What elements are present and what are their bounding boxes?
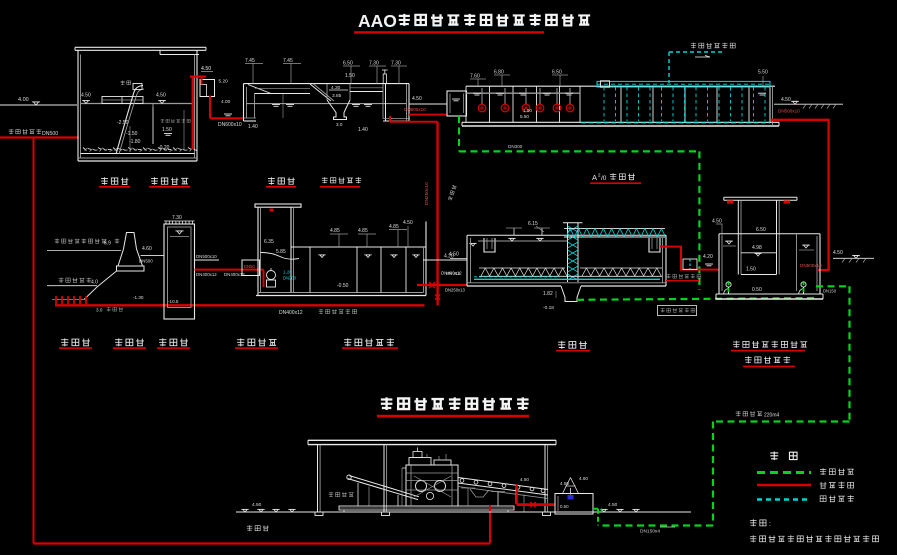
svg-text:DN150x4: DN150x4: [640, 529, 660, 535]
svg-text:7.30: 7.30: [172, 215, 182, 221]
svg-text:3.0: 3.0: [96, 308, 103, 313]
svg-text:DN400x12: DN400x12: [279, 310, 303, 316]
svg-text:DN400x12: DN400x12: [196, 272, 217, 277]
svg-text:0.50: 0.50: [752, 287, 762, 293]
svg-text:6.50: 6.50: [756, 227, 766, 233]
svg-text:DN500x10: DN500x10: [800, 263, 822, 268]
svg-text:7.60: 7.60: [470, 74, 480, 80]
svg-text:1.50: 1.50: [162, 127, 172, 133]
svg-text:4.50: 4.50: [560, 481, 569, 486]
svg-text:-1.30: -1.30: [133, 295, 144, 300]
svg-text:-0.20: -0.20: [158, 145, 170, 151]
svg-text:7.30: 7.30: [369, 61, 379, 67]
svg-text:3.85: 3.85: [332, 93, 342, 99]
svg-text:4.50: 4.50: [520, 477, 529, 482]
svg-text:A: A: [592, 173, 597, 182]
svg-text:1.40: 1.40: [358, 127, 368, 133]
svg-text:4.20: 4.20: [703, 254, 713, 260]
svg-text:7.30: 7.30: [391, 61, 401, 67]
svg-text:4.50: 4.50: [712, 219, 722, 225]
svg-text:220m4: 220m4: [764, 413, 780, 419]
svg-text:AAO: AAO: [358, 11, 397, 31]
svg-text:6.35: 6.35: [264, 239, 274, 245]
svg-text:6.80: 6.80: [494, 70, 504, 76]
svg-text:5.50: 5.50: [758, 70, 768, 76]
svg-text:4.85: 4.85: [330, 228, 340, 234]
svg-text:1.40: 1.40: [248, 124, 258, 130]
svg-text:4.50: 4.50: [156, 93, 166, 99]
svg-text:DN500: DN500: [139, 259, 153, 264]
svg-text:1.82: 1.82: [543, 291, 553, 297]
svg-text:-0.18: -0.18: [543, 305, 554, 311]
svg-text:3.0: 3.0: [336, 122, 343, 127]
svg-text:5.20: 5.20: [219, 79, 229, 85]
svg-text:-1.80: -1.80: [129, 139, 141, 145]
svg-text:1.50: 1.50: [345, 73, 355, 79]
svg-text:7.45: 7.45: [283, 58, 293, 64]
svg-text:4.50: 4.50: [252, 502, 262, 508]
svg-text:DN300: DN300: [508, 144, 523, 149]
svg-text:4.98: 4.98: [752, 245, 762, 251]
svg-text:4.50: 4.50: [608, 502, 618, 508]
svg-text:6.15: 6.15: [528, 221, 538, 227]
svg-text:4.60: 4.60: [142, 246, 152, 252]
svg-text:4.0: 4.0: [91, 280, 98, 286]
svg-text:DN50: DN50: [244, 264, 255, 269]
svg-text:4.85: 4.85: [389, 224, 399, 230]
svg-text:4.50: 4.50: [833, 250, 843, 256]
svg-text:4.50: 4.50: [781, 97, 791, 103]
svg-text:4.60: 4.60: [579, 476, 588, 481]
svg-text:DN600x10: DN600x10: [404, 107, 426, 112]
svg-text:-2.50: -2.50: [117, 120, 129, 126]
svg-text:DN500: DN500: [42, 131, 58, 137]
svg-text:DN600x10: DN600x10: [218, 122, 242, 128]
svg-text:1.20: 1.20: [283, 270, 292, 275]
svg-text:DN200: DN200: [283, 276, 297, 281]
svg-text::: :: [769, 521, 771, 528]
svg-text:4.30: 4.30: [331, 85, 341, 91]
svg-text:4.50: 4.50: [449, 252, 459, 258]
svg-text:4.00: 4.00: [221, 99, 231, 105]
svg-text:4.50: 4.50: [412, 96, 422, 102]
svg-text:DN500x10: DN500x10: [196, 254, 217, 259]
svg-text:6.50: 6.50: [552, 70, 562, 76]
svg-text:-0.50: -0.50: [337, 283, 349, 289]
svg-text:DN250x10: DN250x10: [424, 182, 430, 205]
svg-text:DN x13: DN x13: [446, 271, 461, 276]
svg-text:1.50: 1.50: [746, 267, 756, 273]
svg-text:5.85: 5.85: [276, 249, 286, 255]
svg-text:5.50: 5.50: [520, 114, 529, 119]
svg-text:6.50: 6.50: [343, 61, 353, 67]
svg-text:4.50: 4.50: [81, 93, 91, 99]
svg-text:DN500x10: DN500x10: [778, 109, 800, 114]
svg-text:7.45: 7.45: [245, 58, 255, 64]
svg-text:/0: /0: [601, 175, 607, 182]
svg-text:DN150: DN150: [823, 289, 837, 294]
svg-text:4.50: 4.50: [403, 220, 413, 226]
svg-text:4.00: 4.00: [18, 97, 29, 103]
svg-text:-1.50: -1.50: [126, 131, 138, 137]
svg-text:-10.5: -10.5: [168, 299, 179, 304]
svg-text:DN250x13: DN250x13: [445, 288, 465, 293]
svg-text:4.85: 4.85: [358, 228, 368, 234]
svg-text:6.9: 6.9: [104, 241, 111, 247]
svg-text:0.50: 0.50: [560, 504, 569, 509]
svg-text:1.50: 1.50: [523, 108, 532, 113]
